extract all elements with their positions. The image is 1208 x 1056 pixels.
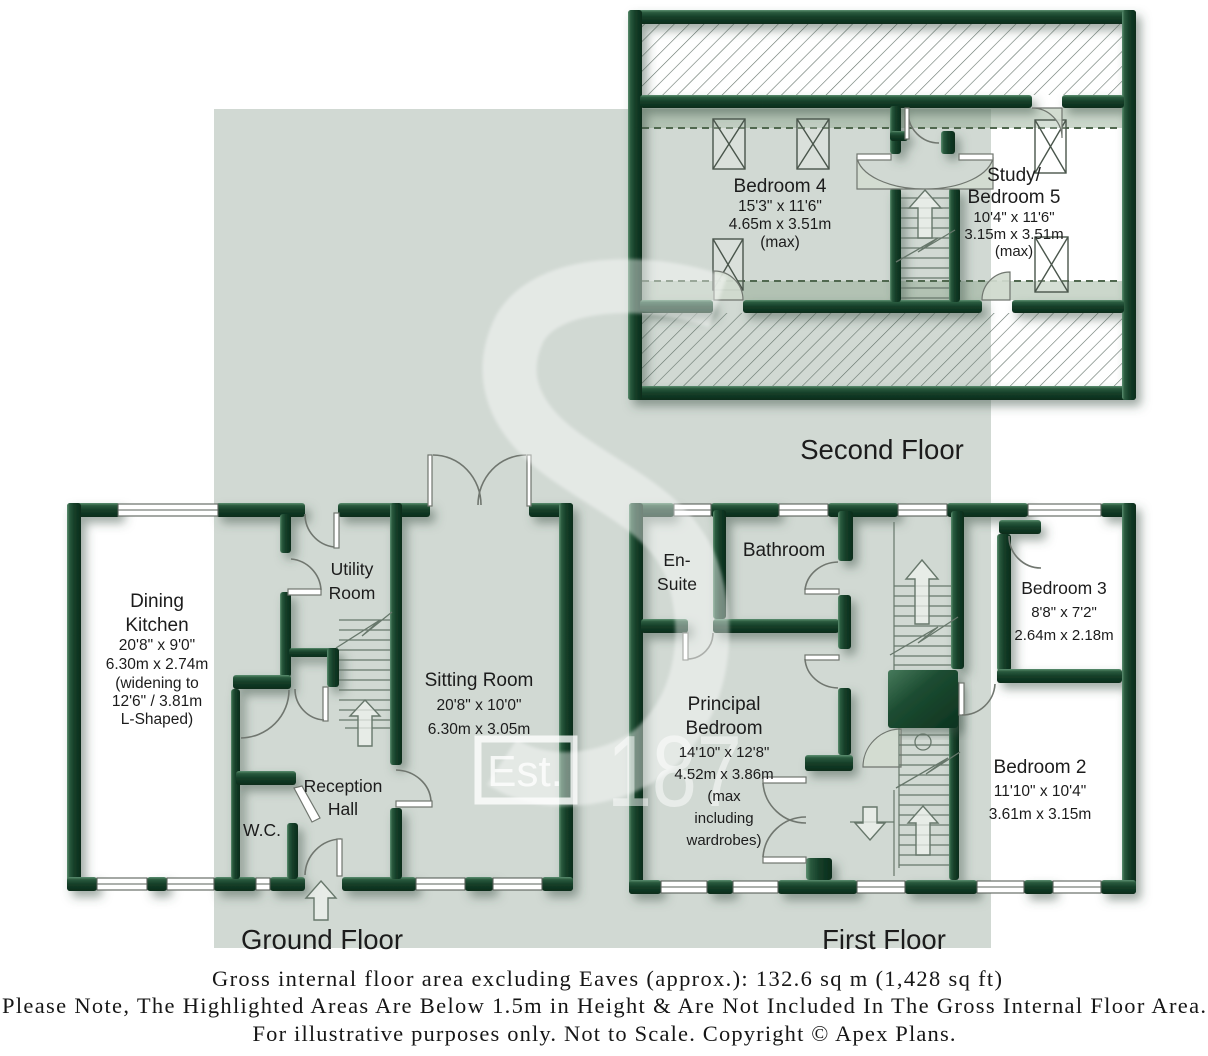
svg-text:Second Floor: Second Floor xyxy=(800,434,964,465)
svg-text:Dining: Dining xyxy=(130,591,184,612)
svg-text:wardrobes): wardrobes) xyxy=(685,832,761,849)
svg-text:Principal: Principal xyxy=(688,694,761,715)
svg-text:20'8" x 9'0": 20'8" x 9'0" xyxy=(119,637,195,654)
svg-text:Est.: Est. xyxy=(487,747,563,796)
svg-text:W.C.: W.C. xyxy=(243,820,281,840)
svg-text:Bedroom 5: Bedroom 5 xyxy=(968,187,1061,208)
svg-text:Bedroom 2: Bedroom 2 xyxy=(994,757,1087,778)
svg-text:3.15m x 3.51m: 3.15m x 3.51m xyxy=(964,226,1063,243)
svg-text:Bedroom 4: Bedroom 4 xyxy=(734,176,827,197)
svg-text:En-: En- xyxy=(663,550,690,570)
svg-text:Bedroom 3: Bedroom 3 xyxy=(1021,578,1107,598)
svg-text:Room: Room xyxy=(329,583,376,603)
svg-text:(max): (max) xyxy=(760,234,800,251)
svg-text:6.30m x 2.74m: 6.30m x 2.74m xyxy=(106,656,209,673)
svg-text:15'3" x 11'6": 15'3" x 11'6" xyxy=(738,198,822,215)
svg-text:including: including xyxy=(694,810,753,827)
svg-text:20'8" x 10'0": 20'8" x 10'0" xyxy=(436,697,521,714)
svg-text:2.64m x 2.18m: 2.64m x 2.18m xyxy=(1014,627,1113,644)
svg-text:4.52m x 3.86m: 4.52m x 3.86m xyxy=(674,766,773,783)
svg-text:(widening to: (widening to xyxy=(115,675,199,692)
svg-text:10'4" x 11'6": 10'4" x 11'6" xyxy=(973,209,1054,226)
svg-text:Ground Floor: Ground Floor xyxy=(241,924,403,955)
svg-text:Bedroom: Bedroom xyxy=(685,718,762,739)
svg-text:11'10" x 10'4": 11'10" x 10'4" xyxy=(994,783,1086,800)
svg-text:14'10" x 12'8": 14'10" x 12'8" xyxy=(679,744,770,761)
svg-text:(max: (max xyxy=(707,788,741,805)
svg-text:Study/: Study/ xyxy=(987,165,1042,186)
svg-text:Sitting Room: Sitting Room xyxy=(425,670,534,691)
svg-text:Utility: Utility xyxy=(331,559,374,579)
svg-text:For illustrative purposes only: For illustrative purposes only. Not to S… xyxy=(253,1021,956,1046)
svg-text:Reception: Reception xyxy=(304,776,383,796)
svg-text:12'6" / 3.81m: 12'6" / 3.81m xyxy=(112,693,202,710)
svg-text:4.65m x 3.51m: 4.65m x 3.51m xyxy=(729,216,832,233)
svg-text:6.30m x 3.05m: 6.30m x 3.05m xyxy=(428,721,531,738)
svg-text:Please Note, The Highlighted A: Please Note, The Highlighted Areas Are B… xyxy=(2,993,1206,1018)
svg-text:Hall: Hall xyxy=(328,799,358,819)
svg-text:Kitchen: Kitchen xyxy=(125,615,188,636)
svg-text:L-Shaped): L-Shaped) xyxy=(121,711,193,728)
svg-text:8'8" x 7'2": 8'8" x 7'2" xyxy=(1031,604,1097,621)
svg-text:First Floor: First Floor xyxy=(822,924,946,955)
svg-text:Suite: Suite xyxy=(657,574,697,594)
svg-text:Bathroom: Bathroom xyxy=(743,540,825,561)
svg-text:Gross internal floor area excl: Gross internal floor area excluding Eave… xyxy=(212,966,1002,991)
svg-text:(max): (max) xyxy=(995,243,1033,260)
svg-text:3.61m x 3.15m: 3.61m x 3.15m xyxy=(989,806,1092,823)
